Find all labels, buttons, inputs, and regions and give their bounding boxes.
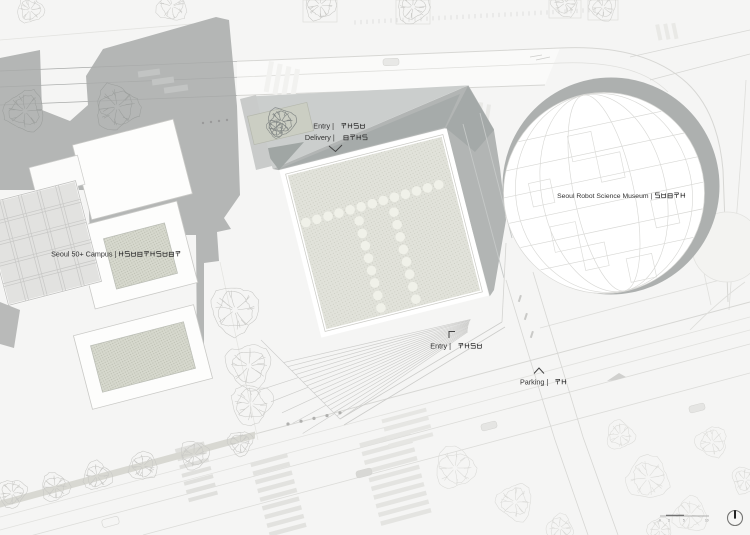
- svg-text:Entry |: Entry |: [430, 342, 451, 351]
- svg-text:Entry |: Entry |: [313, 122, 334, 131]
- svg-text:5: 5: [683, 519, 685, 523]
- svg-text:2: 2: [668, 519, 670, 523]
- svg-text:0: 0: [659, 519, 661, 523]
- svg-text:Parking |: Parking |: [520, 378, 548, 387]
- svg-text:Seoul Robot Science Museum |: Seoul Robot Science Museum |: [557, 193, 652, 200]
- svg-text:Delivery |: Delivery |: [305, 133, 335, 142]
- svg-text:10: 10: [705, 519, 709, 523]
- svg-text:Seoul 50+ Campus |: Seoul 50+ Campus |: [51, 250, 116, 259]
